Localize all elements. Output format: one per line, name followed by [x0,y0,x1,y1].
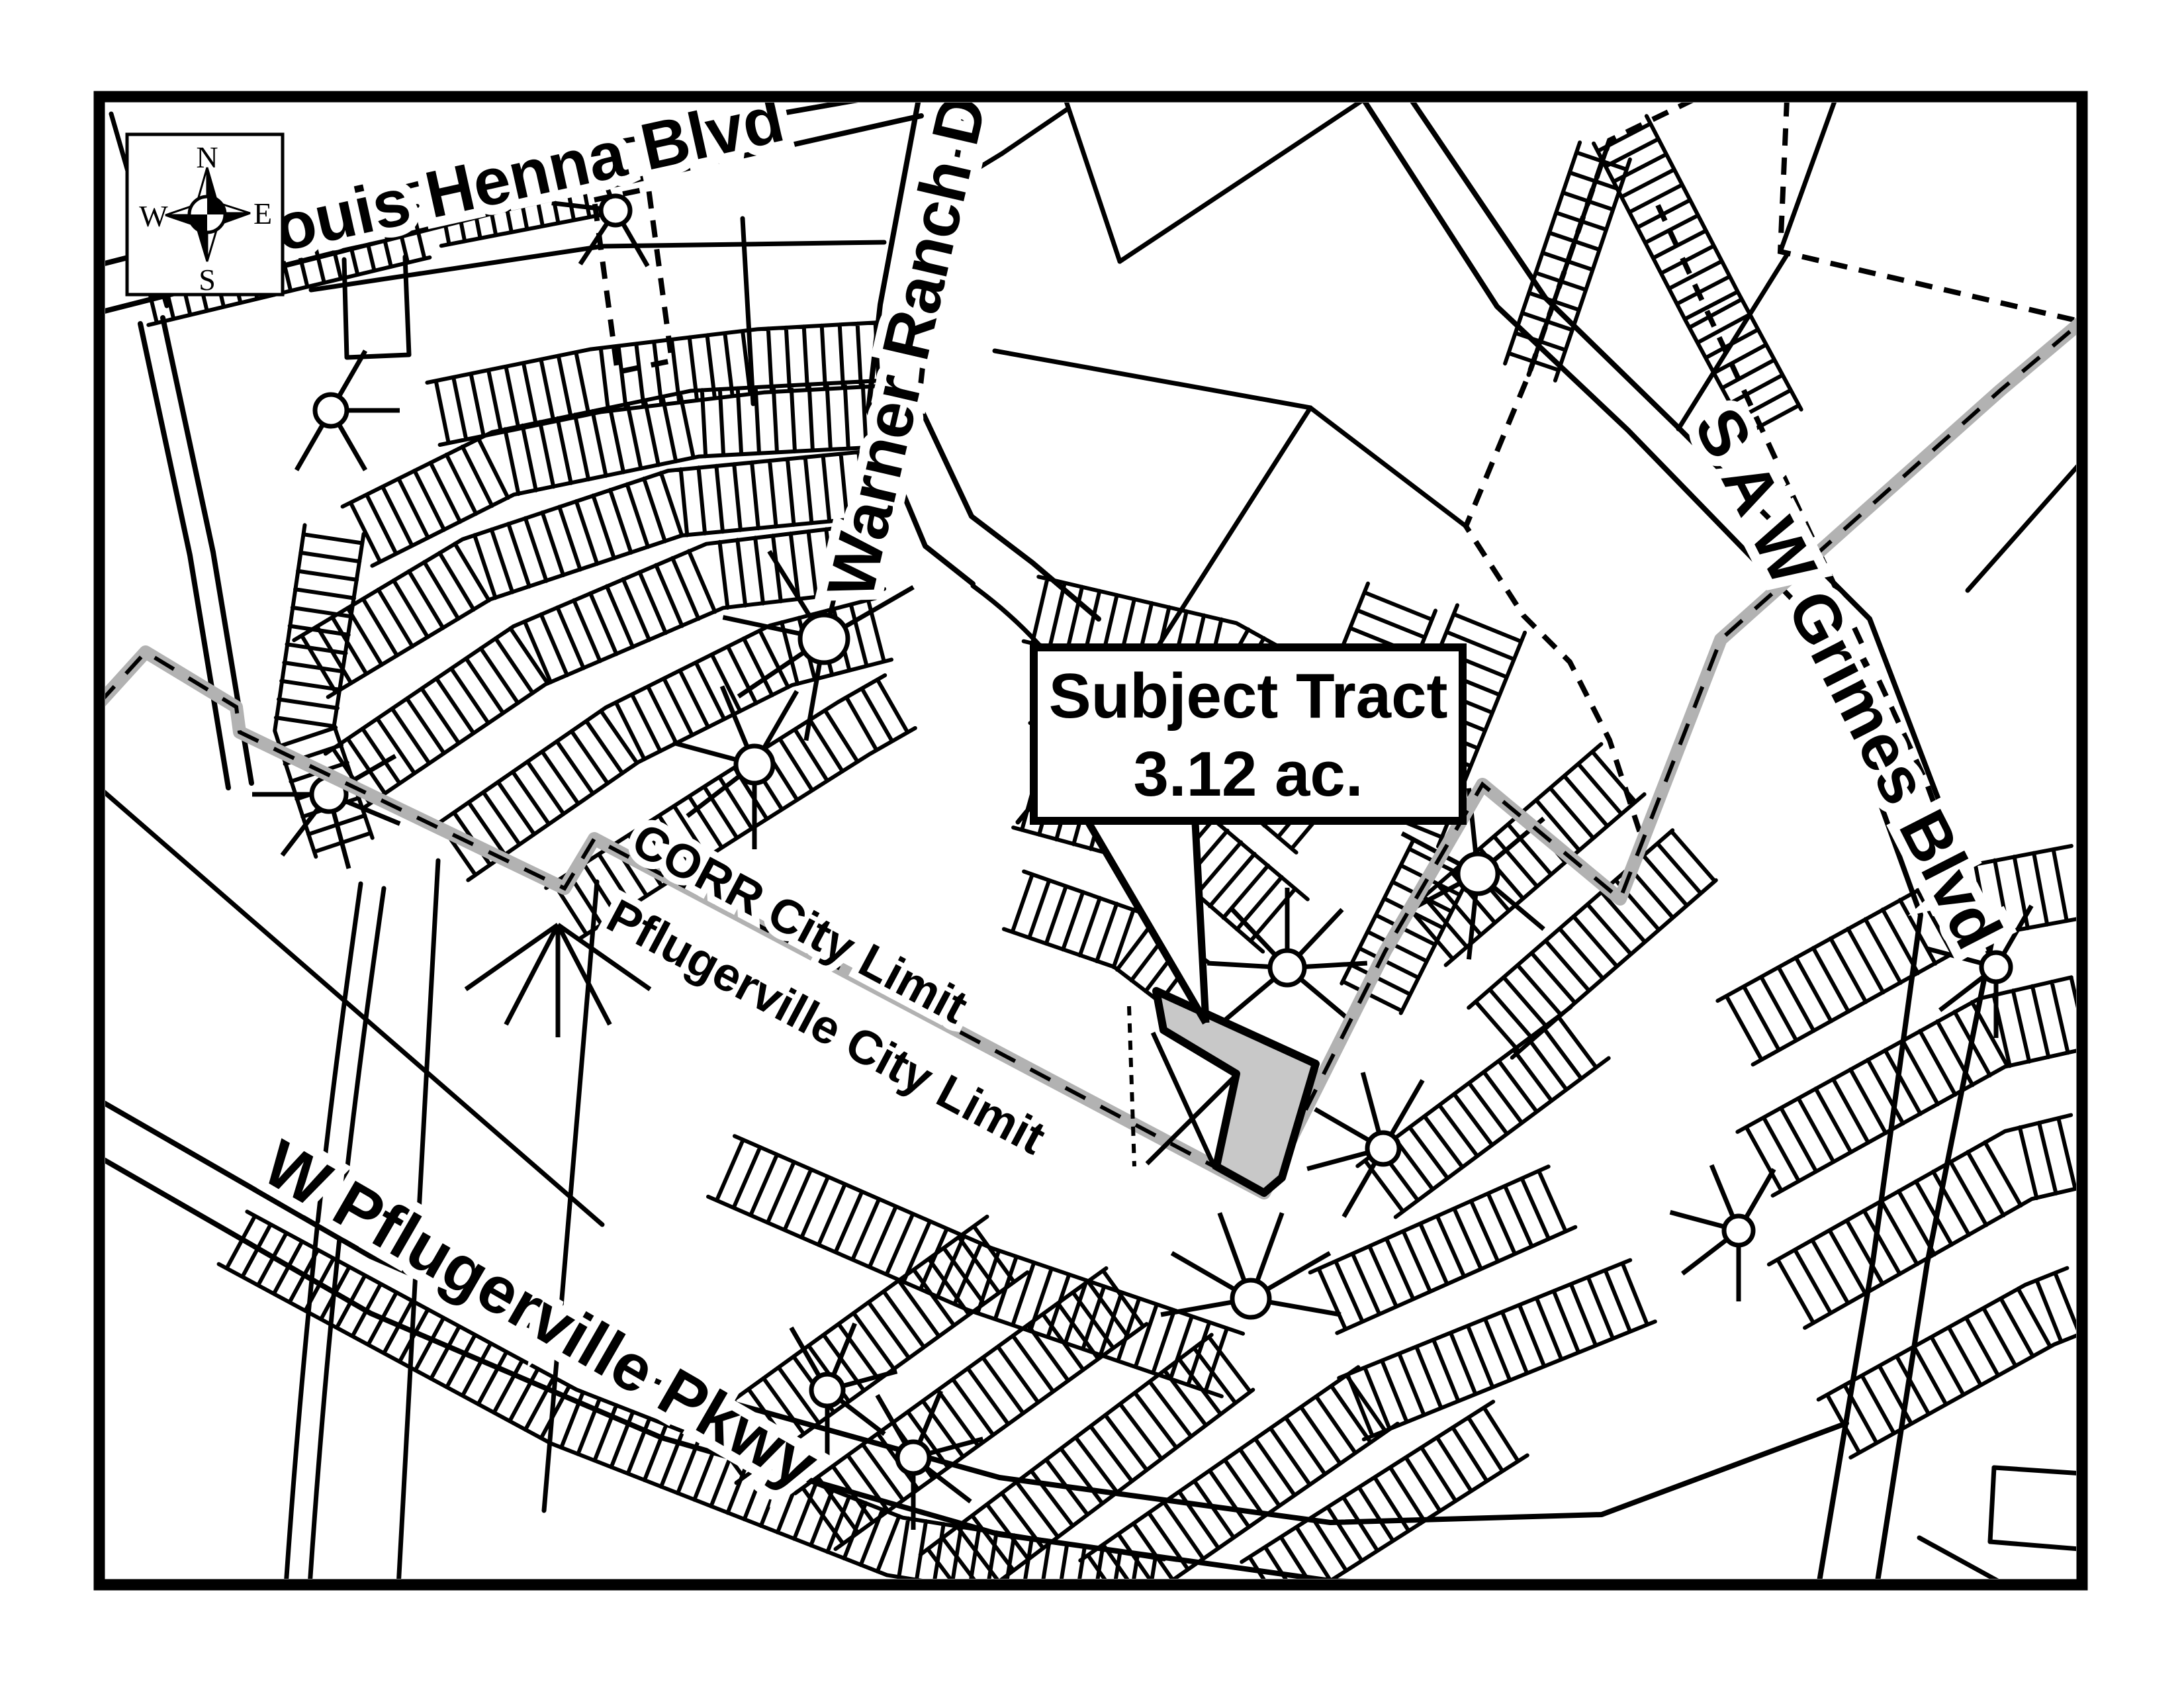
culdesac-circle [811,1374,843,1406]
culdesac-circle [800,615,848,663]
culdesac-circle [736,746,773,783]
culdesac-circle [1270,951,1304,985]
culdesac-circle [1981,953,2011,982]
culdesac-circle [315,395,347,426]
compass-letter-w: W [139,199,168,233]
culdesac-circle [1724,1216,1753,1245]
compass-rose: N S W E [127,134,283,297]
compass-letter-e: E [253,197,272,230]
map-canvas: Louis Henna Blvd Warner Ranch Dr S A W G… [0,0,2184,1688]
culdesac-circle [897,1442,929,1474]
callout-area-value: 3.12 ac. [1134,739,1363,810]
plat-map-page: Louis Henna Blvd Warner Ranch Dr S A W G… [0,0,2184,1688]
compass-letter-n: N [196,140,218,174]
culdesac-circle [1232,1280,1269,1317]
culdesac-circle [1367,1133,1399,1164]
culdesac-circle [1458,854,1498,894]
callout-title: Subject Tract [1049,661,1448,731]
compass-letter-s: S [199,263,216,297]
